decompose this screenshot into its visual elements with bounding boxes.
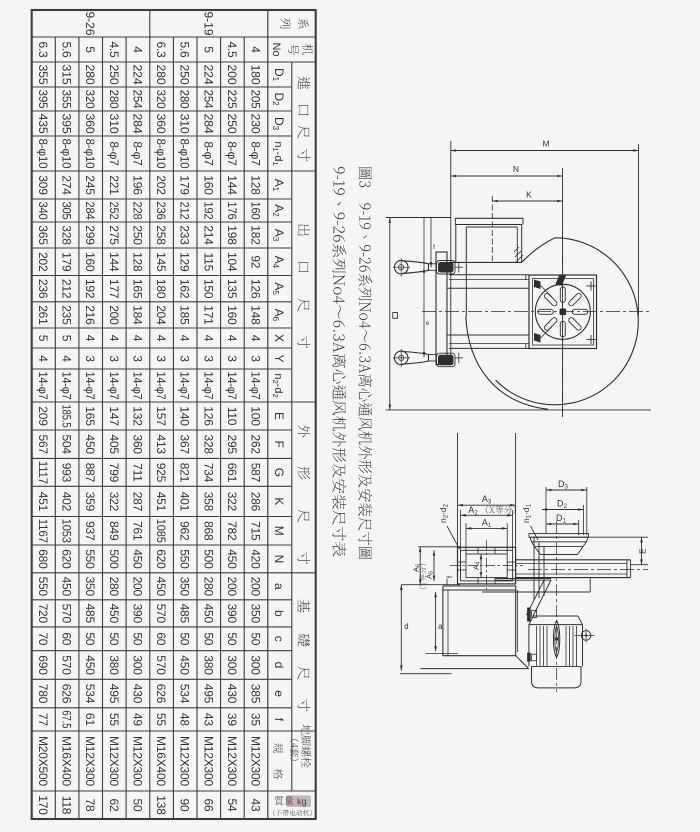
svg-text:212: 212 xyxy=(60,279,74,299)
svg-text:f: f xyxy=(433,244,435,251)
svg-text:128: 128 xyxy=(130,252,144,272)
svg-text:233: 233 xyxy=(178,225,192,245)
svg-text:180: 180 xyxy=(154,279,168,299)
svg-text:E: E xyxy=(272,412,286,420)
svg-text:5.6: 5.6 xyxy=(60,41,74,58)
svg-text:50: 50 xyxy=(249,632,263,645)
svg-text:e: e xyxy=(426,320,430,327)
svg-text:a: a xyxy=(438,622,443,631)
svg-text:360: 360 xyxy=(154,114,168,135)
svg-text:50: 50 xyxy=(201,632,215,645)
svg-text:295: 295 xyxy=(225,434,239,454)
svg-text:550: 550 xyxy=(83,549,97,569)
svg-text:A4: A4 xyxy=(472,562,482,570)
svg-text:a: a xyxy=(272,583,286,590)
svg-text:495: 495 xyxy=(107,684,121,704)
svg-text:350: 350 xyxy=(249,604,263,624)
svg-text:50: 50 xyxy=(130,632,144,645)
svg-text:355: 355 xyxy=(60,90,74,110)
svg-text:E: E xyxy=(638,548,648,554)
svg-text:14-φ7: 14-φ7 xyxy=(201,372,215,400)
svg-text:176: 176 xyxy=(225,202,239,220)
svg-text:4: 4 xyxy=(130,335,144,342)
svg-text:385: 385 xyxy=(249,684,263,704)
svg-text:799: 799 xyxy=(107,463,121,483)
svg-text:M16X400: M16X400 xyxy=(154,736,168,786)
svg-text:A6: A6 xyxy=(271,309,286,322)
svg-text:D2: D2 xyxy=(271,92,286,106)
svg-text:D3: D3 xyxy=(271,117,286,131)
svg-text:49: 49 xyxy=(130,713,144,726)
svg-text:4: 4 xyxy=(83,335,97,342)
svg-text:450: 450 xyxy=(130,549,144,569)
svg-text:204: 204 xyxy=(154,305,168,325)
svg-text:35: 35 xyxy=(249,713,263,726)
svg-text:c: c xyxy=(272,636,286,642)
svg-text:221: 221 xyxy=(107,175,121,195)
svg-text:254: 254 xyxy=(130,90,144,110)
svg-text:4.5: 4.5 xyxy=(107,41,121,58)
svg-text:f: f xyxy=(272,718,286,722)
svg-text:534: 534 xyxy=(83,684,97,704)
svg-text:4: 4 xyxy=(36,355,50,362)
svg-text:165: 165 xyxy=(83,406,97,426)
svg-text:274: 274 xyxy=(60,175,74,195)
svg-text:50: 50 xyxy=(107,632,121,645)
svg-text:Y: Y xyxy=(272,354,286,362)
svg-text:450: 450 xyxy=(154,577,168,597)
svg-text:3: 3 xyxy=(201,355,215,362)
svg-text:225: 225 xyxy=(225,90,239,110)
svg-text:380: 380 xyxy=(107,655,121,675)
svg-text:8-φ10: 8-φ10 xyxy=(60,139,74,169)
svg-text:179: 179 xyxy=(178,175,192,195)
svg-text:e: e xyxy=(272,690,286,697)
svg-text:390: 390 xyxy=(225,604,239,624)
svg-text:485: 485 xyxy=(83,604,97,624)
svg-text:182: 182 xyxy=(249,225,263,245)
svg-text:179: 179 xyxy=(60,252,74,272)
svg-text:G: G xyxy=(272,468,286,477)
svg-text:450: 450 xyxy=(60,577,74,597)
svg-text:D1: D1 xyxy=(556,513,567,525)
svg-text:367: 367 xyxy=(178,434,192,454)
svg-text:360: 360 xyxy=(83,114,97,135)
svg-text:135: 135 xyxy=(225,279,239,299)
svg-text:3: 3 xyxy=(178,355,192,362)
svg-text:160: 160 xyxy=(201,175,215,195)
svg-text:66: 66 xyxy=(201,799,215,812)
svg-text:224: 224 xyxy=(130,65,144,86)
svg-text:5.6: 5.6 xyxy=(178,41,192,58)
svg-text:54: 54 xyxy=(225,799,239,812)
svg-text:413: 413 xyxy=(154,434,168,454)
svg-text:A2: A2 xyxy=(271,204,286,217)
svg-text:450: 450 xyxy=(107,604,121,624)
svg-text:435: 435 xyxy=(36,114,50,135)
svg-text:395: 395 xyxy=(60,114,74,135)
svg-text:115: 115 xyxy=(201,253,215,272)
svg-text:261: 261 xyxy=(36,305,50,325)
svg-text:500: 500 xyxy=(107,549,121,569)
svg-text:147: 147 xyxy=(107,406,121,426)
svg-text:8-φ10: 8-φ10 xyxy=(178,139,192,169)
svg-text:284: 284 xyxy=(201,114,215,135)
svg-text:626: 626 xyxy=(60,684,74,704)
svg-text:1053: 1053 xyxy=(60,519,74,543)
svg-text:821: 821 xyxy=(178,463,192,483)
svg-text:A4: A4 xyxy=(271,256,286,269)
svg-text:250: 250 xyxy=(107,65,121,86)
svg-text:401: 401 xyxy=(178,492,192,512)
svg-text:8-φ7: 8-φ7 xyxy=(130,141,144,166)
svg-text:148: 148 xyxy=(249,305,263,325)
svg-text:300: 300 xyxy=(225,655,239,675)
svg-text:200: 200 xyxy=(107,305,121,325)
svg-text:5: 5 xyxy=(60,335,74,342)
svg-text:K: K xyxy=(526,190,532,200)
svg-text:128: 128 xyxy=(249,175,263,195)
svg-text:280: 280 xyxy=(83,65,97,86)
svg-text:4: 4 xyxy=(107,335,121,342)
svg-text:M20X500: M20X500 xyxy=(36,736,50,786)
svg-text:110: 110 xyxy=(225,407,239,426)
svg-text:365: 365 xyxy=(36,225,50,245)
svg-text:48: 48 xyxy=(178,713,192,726)
svg-text:451: 451 xyxy=(36,492,50,512)
svg-text:4: 4 xyxy=(201,335,215,342)
svg-text:14-φ7: 14-φ7 xyxy=(130,372,144,400)
svg-text:626: 626 xyxy=(154,684,168,704)
svg-text:235: 235 xyxy=(60,305,74,325)
svg-text:M12X300: M12X300 xyxy=(130,736,144,786)
svg-text:495: 495 xyxy=(201,684,215,704)
svg-text:310: 310 xyxy=(107,114,121,135)
svg-text:192: 192 xyxy=(201,202,215,220)
svg-text:N: N xyxy=(513,164,519,174)
svg-text:N: N xyxy=(272,555,286,564)
svg-text:50: 50 xyxy=(178,632,192,645)
svg-text:209: 209 xyxy=(36,406,50,426)
svg-text:185.5: 185.5 xyxy=(60,405,74,428)
svg-text:230: 230 xyxy=(249,114,263,135)
svg-text:9-19: 9-19 xyxy=(201,11,215,35)
svg-text:43: 43 xyxy=(201,713,215,726)
svg-text:620: 620 xyxy=(154,549,168,569)
svg-text:No: No xyxy=(270,42,282,56)
svg-text:254: 254 xyxy=(201,90,215,110)
svg-text:315: 315 xyxy=(60,65,74,86)
svg-text:145: 145 xyxy=(154,252,168,272)
svg-text:5: 5 xyxy=(83,46,97,53)
svg-text:500: 500 xyxy=(201,549,215,569)
svg-text:129: 129 xyxy=(178,252,192,272)
svg-text:50: 50 xyxy=(83,632,97,645)
svg-text:X: X xyxy=(272,334,286,342)
svg-text:165: 165 xyxy=(130,279,144,299)
svg-text:887: 887 xyxy=(83,463,97,483)
svg-text:n2-d2: n2-d2 xyxy=(271,373,284,397)
svg-text:55: 55 xyxy=(107,713,121,726)
svg-text:61: 61 xyxy=(83,713,97,726)
svg-text:A5: A5 xyxy=(425,571,435,579)
svg-text:252: 252 xyxy=(107,202,121,220)
svg-text:n2-d2: n2-d2 xyxy=(438,503,449,523)
svg-text:550: 550 xyxy=(36,577,50,597)
svg-text:202: 202 xyxy=(154,175,168,195)
svg-text:198: 198 xyxy=(225,225,239,245)
svg-text:402: 402 xyxy=(60,492,74,512)
svg-text:849: 849 xyxy=(107,521,121,541)
svg-text:200: 200 xyxy=(249,577,263,597)
svg-text:4.5: 4.5 xyxy=(225,41,239,58)
svg-text:962: 962 xyxy=(178,521,192,541)
svg-text:284: 284 xyxy=(83,202,97,220)
svg-text:216: 216 xyxy=(83,305,97,325)
svg-text:390: 390 xyxy=(130,604,144,624)
svg-text:138: 138 xyxy=(154,795,168,815)
svg-text:55: 55 xyxy=(154,713,168,726)
svg-text:A1: A1 xyxy=(482,518,492,530)
svg-text:60: 60 xyxy=(154,632,168,645)
svg-text:104: 104 xyxy=(225,252,239,272)
svg-text:202: 202 xyxy=(36,252,50,272)
svg-text:f: f xyxy=(445,575,454,578)
svg-text:170: 170 xyxy=(36,795,50,815)
svg-text:177: 177 xyxy=(107,279,121,299)
svg-text:355: 355 xyxy=(36,65,50,86)
svg-text:3: 3 xyxy=(107,355,121,362)
svg-text:132: 132 xyxy=(130,406,144,426)
svg-text:43: 43 xyxy=(249,799,263,812)
svg-text:300: 300 xyxy=(249,655,263,675)
svg-text:570: 570 xyxy=(60,655,74,675)
svg-text:8-φ7: 8-φ7 xyxy=(225,141,239,166)
svg-text:250: 250 xyxy=(178,65,192,86)
svg-text:50: 50 xyxy=(130,799,144,812)
svg-text:286: 286 xyxy=(249,492,263,512)
svg-text:690: 690 xyxy=(36,655,50,675)
svg-text:8-φ7: 8-φ7 xyxy=(201,141,215,166)
svg-text:150: 150 xyxy=(201,279,215,299)
svg-text:250: 250 xyxy=(225,114,239,135)
svg-text:280: 280 xyxy=(178,90,192,110)
svg-text:14-φ7: 14-φ7 xyxy=(178,372,192,400)
svg-text:4: 4 xyxy=(249,335,263,342)
svg-text:287: 287 xyxy=(130,492,144,512)
svg-text:160: 160 xyxy=(249,202,263,220)
svg-text:280: 280 xyxy=(201,577,215,597)
svg-text:M12X300: M12X300 xyxy=(201,736,215,786)
svg-text:275: 275 xyxy=(107,225,121,245)
svg-text:140: 140 xyxy=(178,406,192,426)
svg-text:280: 280 xyxy=(107,577,121,597)
svg-text:711: 711 xyxy=(130,463,144,482)
svg-text:430: 430 xyxy=(130,684,144,704)
svg-text:360: 360 xyxy=(130,434,144,454)
svg-text:620: 620 xyxy=(60,549,74,569)
svg-text:n1-d1: n1-d1 xyxy=(271,141,284,165)
svg-text:322: 322 xyxy=(107,492,121,512)
svg-text:M12X300: M12X300 xyxy=(249,736,263,786)
svg-text:534: 534 xyxy=(178,684,192,704)
svg-text:350: 350 xyxy=(178,577,192,597)
svg-text:359: 359 xyxy=(83,492,97,512)
svg-text:450: 450 xyxy=(178,655,192,675)
svg-text:D3: D3 xyxy=(558,479,569,491)
svg-text:782: 782 xyxy=(225,521,239,541)
svg-text:305: 305 xyxy=(60,202,74,220)
svg-text:8-φ10: 8-φ10 xyxy=(36,139,50,169)
svg-text:405: 405 xyxy=(107,434,121,454)
svg-text:A6: A6 xyxy=(412,564,422,572)
svg-text:14-φ7: 14-φ7 xyxy=(107,372,121,400)
svg-text:A5: A5 xyxy=(271,282,286,295)
svg-text:236: 236 xyxy=(154,202,168,220)
svg-text:309: 309 xyxy=(36,175,50,195)
svg-text:228: 228 xyxy=(130,202,144,220)
svg-text:A3: A3 xyxy=(271,229,286,242)
svg-text:6.3: 6.3 xyxy=(36,41,50,58)
svg-text:3: 3 xyxy=(130,355,144,362)
svg-text:d: d xyxy=(404,622,408,631)
svg-text:868: 868 xyxy=(201,521,215,541)
svg-text:78: 78 xyxy=(83,799,97,812)
svg-text:1167: 1167 xyxy=(36,519,50,543)
svg-text:67.5: 67.5 xyxy=(60,710,74,728)
svg-text:162: 162 xyxy=(178,279,192,299)
svg-text:734: 734 xyxy=(201,463,215,483)
svg-text:90: 90 xyxy=(178,799,192,812)
svg-text:9-26: 9-26 xyxy=(83,11,97,35)
svg-text:340: 340 xyxy=(36,202,50,220)
svg-text:160: 160 xyxy=(225,305,239,325)
svg-text:D2: D2 xyxy=(557,499,568,511)
svg-text:212: 212 xyxy=(178,202,192,220)
svg-text:144: 144 xyxy=(225,175,239,195)
svg-text:192: 192 xyxy=(83,279,97,299)
svg-text:4: 4 xyxy=(130,46,144,53)
svg-text:322: 322 xyxy=(225,492,239,512)
svg-text:14-φ7: 14-φ7 xyxy=(225,372,239,400)
svg-text:214: 214 xyxy=(201,225,215,245)
svg-text:185: 185 xyxy=(178,305,192,325)
svg-text:200: 200 xyxy=(225,65,239,86)
svg-text:761: 761 xyxy=(130,521,144,541)
svg-text:b: b xyxy=(272,610,286,617)
svg-text:420: 420 xyxy=(249,549,263,569)
svg-text:F: F xyxy=(272,441,286,448)
svg-text:d: d xyxy=(272,662,286,669)
svg-text:300: 300 xyxy=(130,655,144,675)
svg-text:720: 720 xyxy=(36,604,50,624)
svg-text:180: 180 xyxy=(249,65,263,86)
svg-text:14-φ7: 14-φ7 xyxy=(36,372,50,400)
svg-text:450: 450 xyxy=(225,549,239,569)
svg-text:4: 4 xyxy=(154,335,168,342)
svg-text:14-φ7: 14-φ7 xyxy=(83,372,97,400)
svg-text:395: 395 xyxy=(36,90,50,110)
svg-text:328: 328 xyxy=(60,225,74,245)
svg-text:780: 780 xyxy=(36,684,50,704)
svg-text:184: 184 xyxy=(130,305,144,325)
svg-text:60: 60 xyxy=(60,632,74,645)
svg-text:205: 205 xyxy=(249,90,263,110)
svg-text:14-φ7: 14-φ7 xyxy=(154,372,168,400)
svg-text:160: 160 xyxy=(83,252,97,272)
svg-text:8-φ10: 8-φ10 xyxy=(154,139,168,169)
svg-text:358: 358 xyxy=(201,492,215,512)
svg-text:4: 4 xyxy=(60,355,74,362)
svg-text:993: 993 xyxy=(60,463,74,483)
svg-text:A1: A1 xyxy=(271,179,286,192)
svg-text:430: 430 xyxy=(225,684,239,704)
svg-text:236: 236 xyxy=(36,279,50,299)
svg-text:n1-d1: n1-d1 xyxy=(521,503,532,523)
svg-text:258: 258 xyxy=(154,225,168,245)
svg-text:171: 171 xyxy=(201,305,215,325)
svg-text:M12X300: M12X300 xyxy=(83,736,97,786)
svg-text:570: 570 xyxy=(154,604,168,624)
svg-text:450: 450 xyxy=(83,434,97,454)
svg-text:8-φ7: 8-φ7 xyxy=(107,141,121,166)
svg-text:280: 280 xyxy=(107,90,121,110)
svg-text:661: 661 xyxy=(225,463,239,483)
svg-text:M16X400: M16X400 xyxy=(60,736,74,786)
svg-text:451: 451 xyxy=(154,492,168,512)
svg-text:39: 39 xyxy=(225,713,239,726)
svg-text:118: 118 xyxy=(60,796,74,815)
svg-text:3: 3 xyxy=(83,355,97,362)
svg-text:937: 937 xyxy=(83,521,97,541)
svg-text:224: 224 xyxy=(201,65,215,86)
svg-text:200: 200 xyxy=(225,577,239,597)
svg-text:3: 3 xyxy=(249,355,263,362)
svg-text:3: 3 xyxy=(225,355,239,362)
svg-text:320: 320 xyxy=(154,90,168,110)
svg-text:3: 3 xyxy=(154,355,168,362)
svg-text:925: 925 xyxy=(154,463,168,483)
svg-text:126: 126 xyxy=(249,279,263,299)
svg-text:262: 262 xyxy=(249,434,263,454)
svg-text:680: 680 xyxy=(36,549,50,569)
svg-text:92: 92 xyxy=(249,255,263,268)
svg-text:77: 77 xyxy=(36,713,50,726)
svg-text:485: 485 xyxy=(178,604,192,624)
svg-text:100: 100 xyxy=(249,406,263,426)
svg-text:4: 4 xyxy=(178,335,192,342)
svg-text:250: 250 xyxy=(130,225,144,245)
svg-text:A3: A3 xyxy=(482,494,492,506)
svg-text:M12X300: M12X300 xyxy=(178,736,192,786)
svg-text:M: M xyxy=(542,139,549,149)
svg-text:14-φ7: 14-φ7 xyxy=(60,372,74,400)
svg-text:1085: 1085 xyxy=(154,519,168,543)
svg-text:550: 550 xyxy=(178,549,192,569)
svg-text:715: 715 xyxy=(249,521,263,541)
svg-text:328: 328 xyxy=(201,434,215,454)
svg-text:14-φ7: 14-φ7 xyxy=(249,372,263,400)
svg-text:70: 70 xyxy=(36,632,50,645)
svg-text:310: 310 xyxy=(178,114,192,135)
svg-text:8-φ10: 8-φ10 xyxy=(83,139,97,169)
svg-text:A2: A2 xyxy=(468,505,478,517)
svg-text:126: 126 xyxy=(201,406,215,426)
svg-text:157: 157 xyxy=(154,406,168,426)
svg-text:570: 570 xyxy=(154,655,168,675)
svg-text:M12X300: M12X300 xyxy=(107,736,121,786)
svg-text:50: 50 xyxy=(225,632,239,645)
